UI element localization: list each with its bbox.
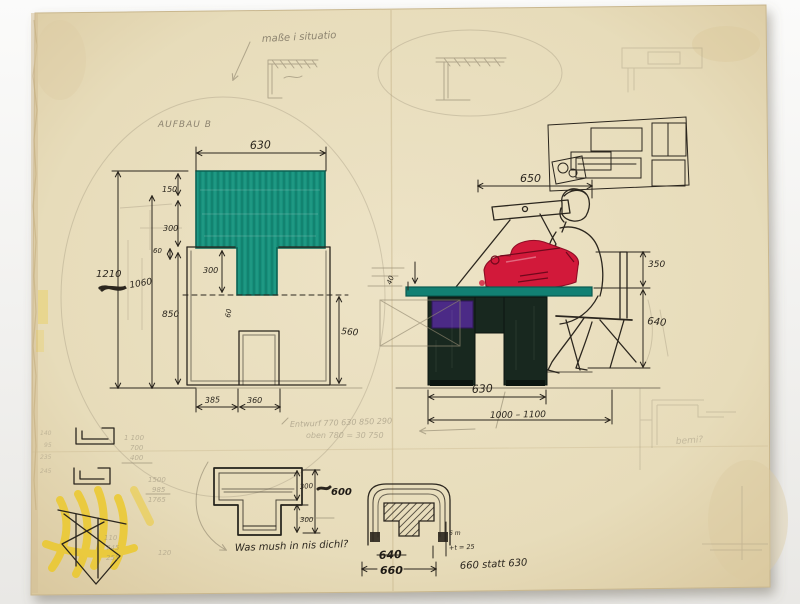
dim-label: 640 [647, 316, 667, 329]
dim-label: 850 [162, 310, 179, 320]
dim-label: 1000 – 1100 [490, 410, 546, 421]
calc-number: 745 [106, 544, 120, 552]
corner-scribble: bemi? [676, 435, 704, 447]
torn-left-edge [31, 13, 38, 593]
detail-note: +t = 25 [449, 543, 475, 552]
dim-label: 150 [162, 185, 177, 194]
calc-number: 255 [106, 554, 120, 562]
dim-label: 630 [250, 138, 271, 152]
dim-label: 300 [203, 266, 218, 275]
calc-number: 120 [158, 549, 172, 557]
calc-number: 985 [152, 486, 166, 494]
dim-label: 650 [520, 172, 541, 185]
calc-number: 1 100 [124, 434, 145, 442]
teal-worktop [406, 287, 592, 296]
calc-number: 245 [40, 468, 52, 475]
calc-number: 95 [44, 442, 52, 449]
calc-number: 400 [130, 454, 144, 462]
dim-label: 600 [331, 487, 352, 498]
dim-label: 1210 [96, 269, 121, 280]
dim-label: 360 [247, 396, 262, 405]
pencil-note: oben 780 = 30 750 [306, 431, 384, 440]
scratched-out-number [318, 487, 330, 489]
dim-label: 660 [380, 564, 403, 577]
scratched-out-number [100, 287, 126, 290]
dim-label: 60 [153, 247, 162, 255]
yellow-smudge [38, 290, 48, 324]
dim-label: 300 [163, 224, 178, 233]
dim-label: 300 [300, 516, 314, 524]
dim-label: 385 [205, 395, 221, 405]
sketch-photo: 630 1210 1060 150 300 60 850 300 60 560 … [0, 0, 800, 604]
aufbau-label: AUFBAU B [157, 120, 212, 130]
calc-number: 110 [104, 534, 118, 542]
detail-note: 6 m [449, 530, 461, 537]
calc-number: 140 [40, 430, 52, 437]
sketch-canvas: 630 1210 1060 150 300 60 850 300 60 560 … [0, 0, 800, 604]
dim-label: 560 [341, 327, 359, 338]
dim-label: 630 [471, 382, 493, 396]
calc-number: 1765 [148, 496, 166, 504]
calc-number: 700 [130, 444, 144, 452]
dim-label: 350 [648, 260, 665, 270]
calc-number: 1500 [148, 476, 166, 484]
dim-label: 300 [299, 482, 314, 491]
calc-number: 235 [40, 454, 52, 461]
